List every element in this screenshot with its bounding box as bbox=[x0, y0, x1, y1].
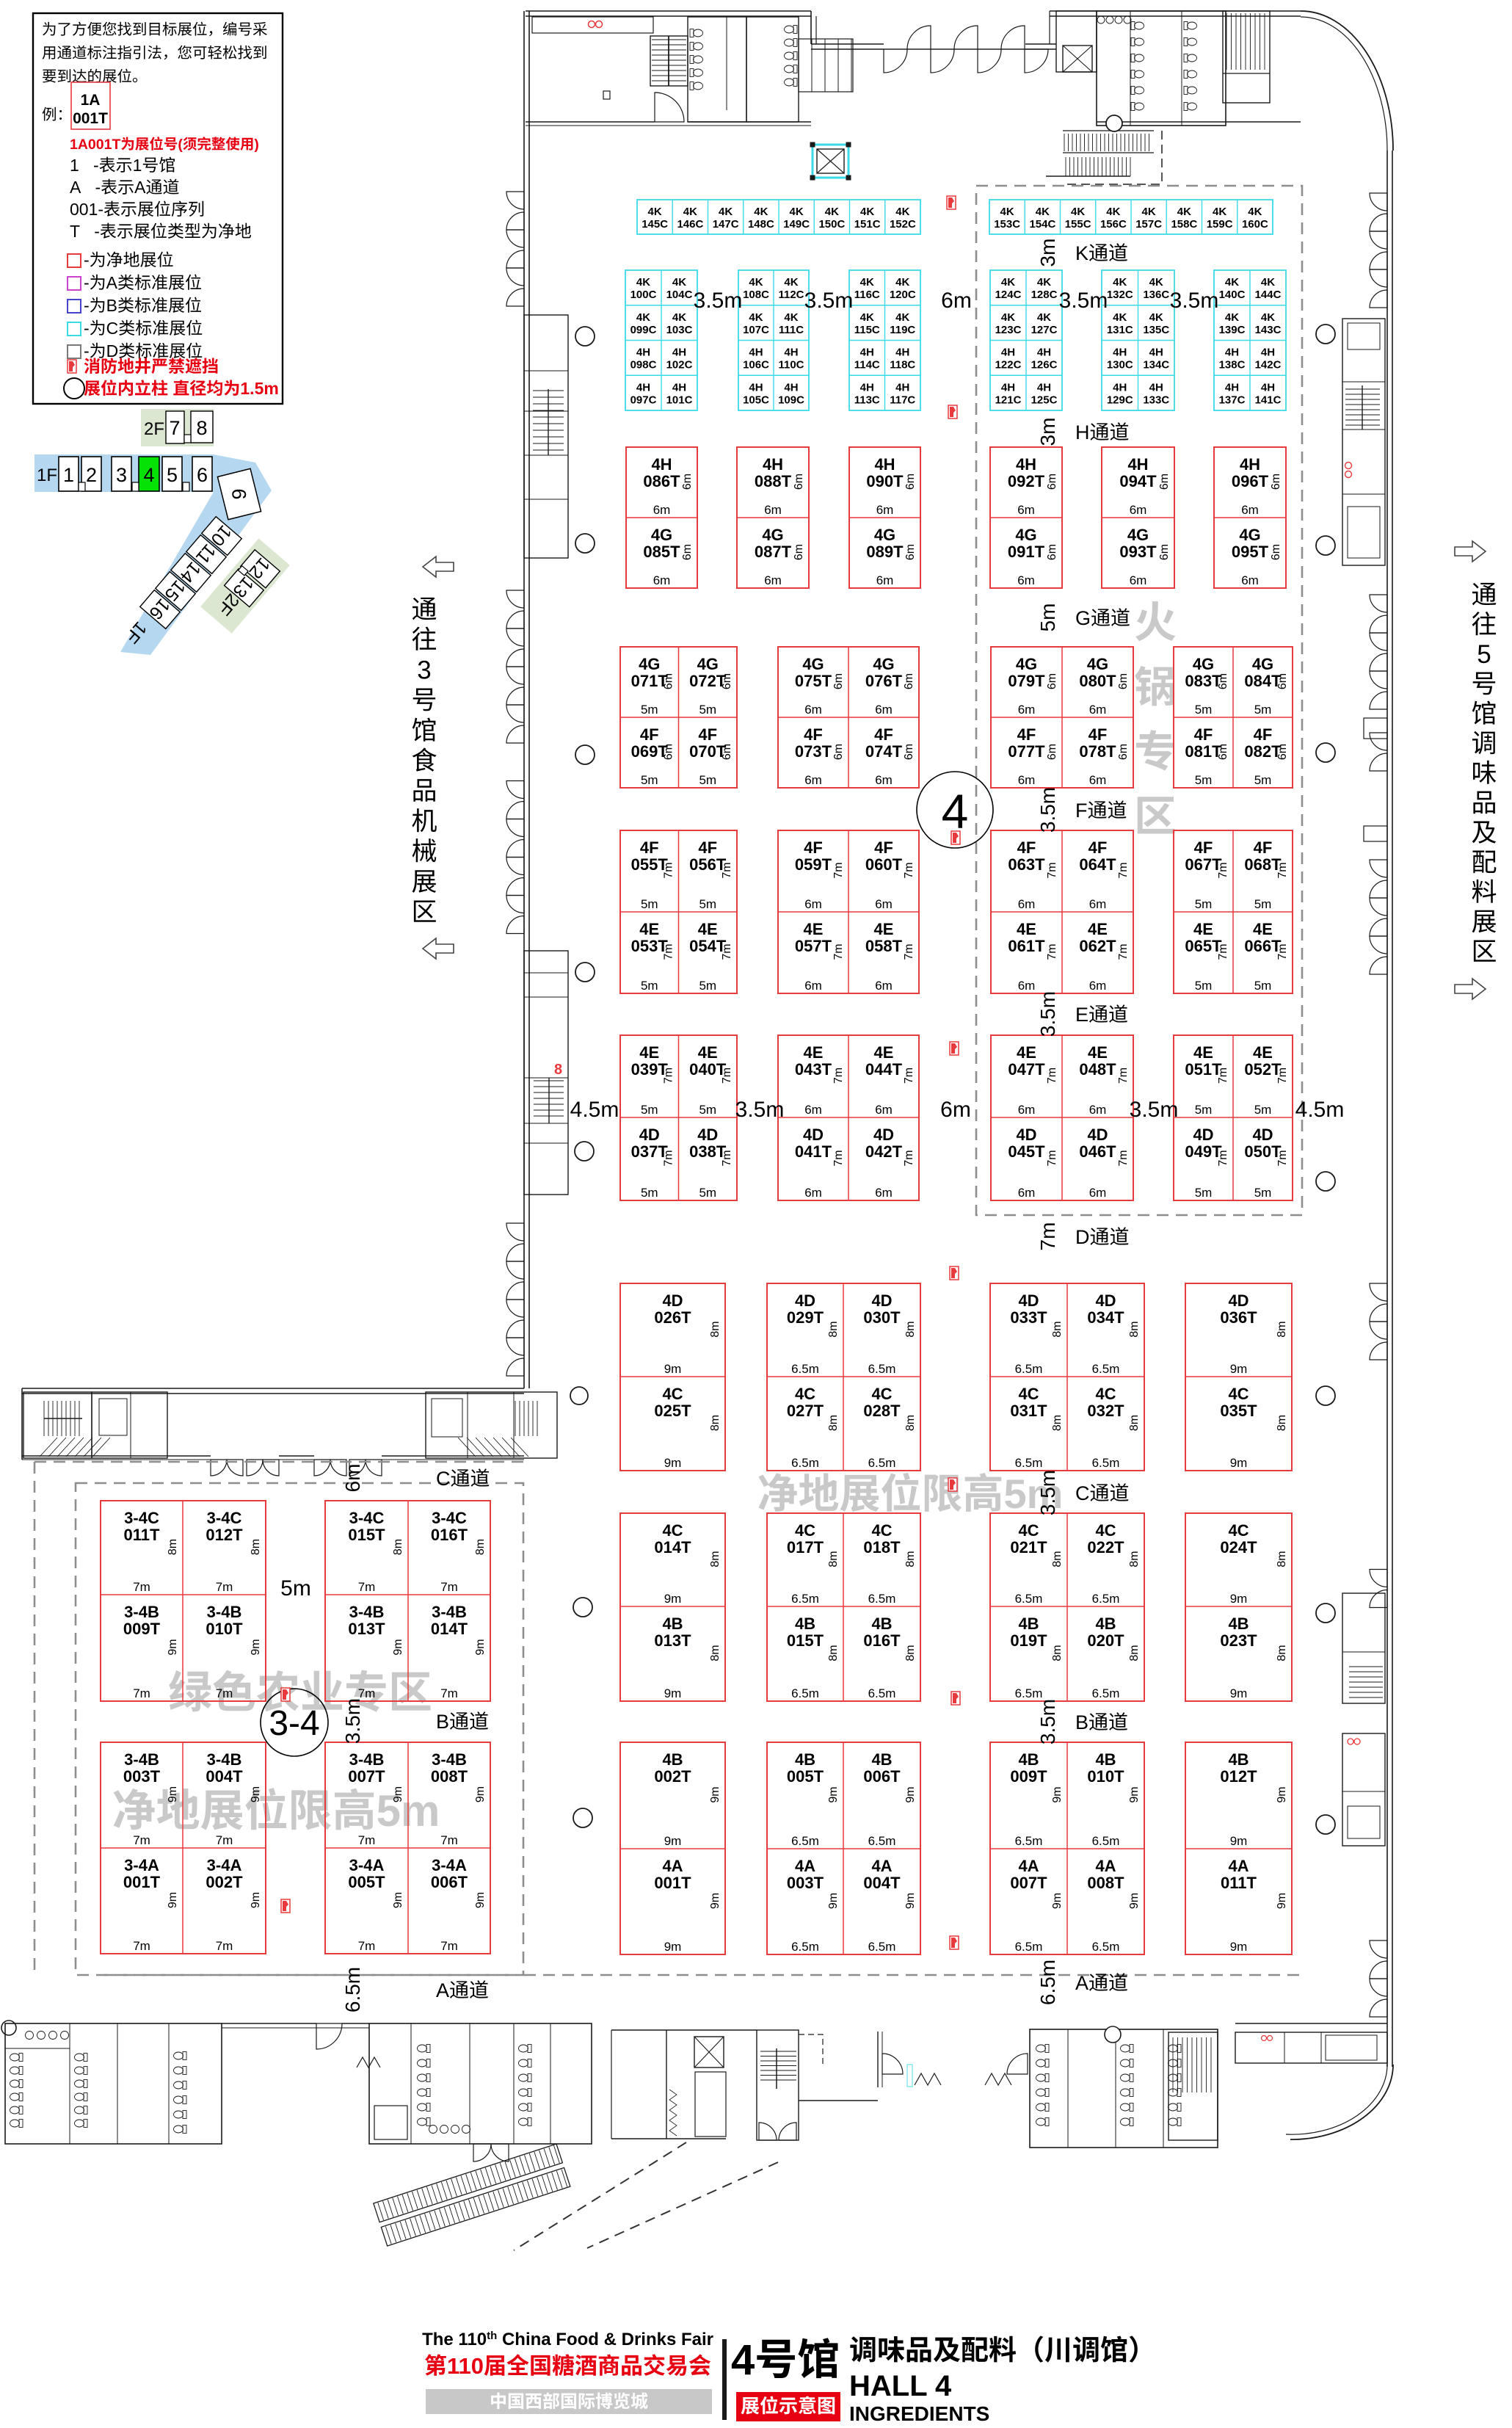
svg-text:4B: 4B bbox=[871, 1615, 892, 1633]
svg-text:010T: 010T bbox=[1087, 1767, 1124, 1786]
svg-text:6m: 6m bbox=[681, 544, 694, 560]
svg-text:4F: 4F bbox=[1017, 838, 1036, 857]
svg-text:114C: 114C bbox=[854, 359, 880, 372]
svg-text:6.5m: 6.5m bbox=[1092, 1686, 1120, 1700]
svg-text:9m: 9m bbox=[167, 1639, 179, 1655]
svg-text:9m: 9m bbox=[1230, 1362, 1248, 1376]
svg-text:7m: 7m bbox=[1276, 1068, 1289, 1084]
svg-text:014T: 014T bbox=[654, 1538, 691, 1557]
svg-text:食: 食 bbox=[411, 747, 437, 775]
svg-text:078T: 078T bbox=[1079, 742, 1116, 761]
svg-text:D通道: D通道 bbox=[1075, 1226, 1130, 1248]
svg-text:4C: 4C bbox=[662, 1385, 683, 1403]
svg-text:6.5m: 6.5m bbox=[868, 1592, 896, 1606]
svg-text:5m: 5m bbox=[1254, 773, 1272, 787]
svg-text:4B: 4B bbox=[1095, 1615, 1116, 1633]
svg-text:122C: 122C bbox=[995, 359, 1022, 372]
svg-text:7m: 7m bbox=[721, 1150, 733, 1166]
svg-text:4K: 4K bbox=[636, 311, 650, 324]
svg-text:4K: 4K bbox=[1113, 276, 1127, 289]
svg-text:6.5m: 6.5m bbox=[791, 1592, 819, 1606]
svg-text:7m: 7m bbox=[1117, 943, 1130, 960]
svg-text:4D: 4D bbox=[1095, 1291, 1116, 1310]
svg-text:K通道: K通道 bbox=[1075, 242, 1128, 264]
svg-text:7m: 7m bbox=[832, 1150, 845, 1166]
svg-text:6m: 6m bbox=[1089, 773, 1107, 787]
svg-text:8m: 8m bbox=[250, 1539, 262, 1555]
svg-text:126C: 126C bbox=[1031, 359, 1058, 372]
svg-text:6m: 6m bbox=[653, 573, 671, 587]
svg-text:5m: 5m bbox=[1195, 979, 1213, 993]
svg-text:3-4B: 3-4B bbox=[124, 1603, 159, 1621]
svg-text:4H: 4H bbox=[1037, 347, 1051, 359]
svg-text:7m: 7m bbox=[216, 1686, 233, 1700]
svg-text:6m: 6m bbox=[832, 744, 845, 760]
svg-text:003T: 003T bbox=[123, 1767, 161, 1786]
svg-text:6m: 6m bbox=[1018, 703, 1036, 717]
svg-text:4D: 4D bbox=[1016, 1126, 1036, 1144]
svg-text:7m: 7m bbox=[1276, 1150, 1289, 1166]
svg-text:7m: 7m bbox=[721, 943, 733, 960]
svg-text:4E: 4E bbox=[1253, 920, 1273, 938]
svg-text:6m: 6m bbox=[1158, 544, 1171, 560]
svg-text:023T: 023T bbox=[1220, 1631, 1257, 1650]
svg-text:5m: 5m bbox=[1195, 1186, 1213, 1200]
svg-text:5m: 5m bbox=[1254, 979, 1272, 993]
svg-text:094T: 094T bbox=[1119, 472, 1157, 490]
svg-text:6m: 6m bbox=[1276, 673, 1289, 689]
svg-text:041T: 041T bbox=[795, 1142, 832, 1161]
svg-text:号: 号 bbox=[1471, 670, 1497, 699]
svg-text:8m: 8m bbox=[827, 1645, 840, 1661]
svg-text:7m: 7m bbox=[1117, 1150, 1130, 1166]
svg-text:4F: 4F bbox=[1088, 838, 1108, 857]
svg-text:158C: 158C bbox=[1171, 218, 1197, 231]
svg-text:A通道: A通道 bbox=[1075, 1972, 1128, 1994]
svg-text:7m: 7m bbox=[721, 1068, 733, 1084]
svg-text:6m: 6m bbox=[875, 1103, 893, 1117]
svg-text:4H: 4H bbox=[1113, 381, 1127, 394]
svg-text:6.5m: 6.5m bbox=[1015, 1940, 1043, 1954]
svg-text:4K: 4K bbox=[1106, 206, 1120, 218]
svg-text:006T: 006T bbox=[431, 1873, 468, 1891]
svg-text:消防地井严禁遮挡: 消防地井严禁遮挡 bbox=[84, 357, 219, 376]
svg-text:004T: 004T bbox=[863, 1874, 901, 1892]
svg-text:059T: 059T bbox=[795, 855, 832, 874]
svg-text:4H: 4H bbox=[874, 455, 895, 474]
svg-text:3-4C: 3-4C bbox=[349, 1509, 385, 1527]
svg-text:4K: 4K bbox=[860, 311, 874, 324]
svg-text:133C: 133C bbox=[1143, 394, 1169, 406]
svg-text:002T: 002T bbox=[654, 1767, 691, 1786]
svg-text:4H: 4H bbox=[636, 381, 650, 394]
svg-text:7m: 7m bbox=[1217, 1068, 1229, 1084]
svg-text:9m: 9m bbox=[904, 1786, 917, 1802]
svg-text:6m: 6m bbox=[1241, 573, 1259, 587]
svg-text:品: 品 bbox=[1471, 789, 1497, 818]
svg-text:073T: 073T bbox=[795, 742, 832, 761]
svg-text:4H: 4H bbox=[1001, 381, 1015, 394]
svg-text:5m: 5m bbox=[1036, 604, 1059, 632]
svg-text:141C: 141C bbox=[1255, 394, 1282, 406]
svg-text:090T: 090T bbox=[866, 472, 904, 490]
svg-text:5m: 5m bbox=[699, 1103, 716, 1117]
svg-text:9m: 9m bbox=[474, 1639, 487, 1655]
svg-text:9m: 9m bbox=[664, 1686, 682, 1700]
svg-text:A通道: A通道 bbox=[436, 1979, 489, 2001]
svg-text:1A: 1A bbox=[81, 92, 101, 109]
svg-text:9m: 9m bbox=[827, 1893, 840, 1909]
svg-text:139C: 139C bbox=[1219, 324, 1246, 336]
svg-text:4H: 4H bbox=[636, 347, 650, 359]
svg-text:009T: 009T bbox=[1010, 1767, 1047, 1786]
svg-text:4K: 4K bbox=[636, 276, 650, 289]
svg-text:010T: 010T bbox=[206, 1620, 243, 1638]
svg-text:153C: 153C bbox=[994, 218, 1020, 231]
svg-text:154C: 154C bbox=[1029, 218, 1055, 231]
svg-text:8m: 8m bbox=[392, 1539, 404, 1555]
svg-text:品: 品 bbox=[411, 777, 437, 805]
svg-text:6.5m: 6.5m bbox=[868, 1456, 896, 1470]
svg-text:4H: 4H bbox=[1261, 347, 1275, 359]
svg-text:HALL 4: HALL 4 bbox=[849, 2370, 952, 2402]
svg-text:1A001T为展位号(须完整使用): 1A001T为展位号(须完整使用) bbox=[70, 137, 259, 153]
svg-text:128C: 128C bbox=[1031, 289, 1058, 301]
svg-text:031T: 031T bbox=[1010, 1402, 1047, 1420]
svg-text:4E: 4E bbox=[1017, 1043, 1036, 1062]
svg-text:4F: 4F bbox=[874, 838, 893, 857]
svg-text:1F: 1F bbox=[37, 465, 57, 485]
svg-text:016T: 016T bbox=[863, 1631, 901, 1650]
svg-text:077T: 077T bbox=[1008, 742, 1045, 761]
svg-text:展: 展 bbox=[411, 868, 437, 896]
svg-text:4G: 4G bbox=[651, 526, 672, 544]
svg-text:6m: 6m bbox=[876, 503, 894, 517]
svg-text:6m: 6m bbox=[804, 773, 822, 787]
svg-text:9m: 9m bbox=[709, 1893, 722, 1909]
svg-text:调味品及配料（川调馆）: 调味品及配料（川调馆） bbox=[849, 2335, 1156, 2366]
svg-text:4G: 4G bbox=[1193, 655, 1214, 673]
svg-text:089T: 089T bbox=[866, 543, 904, 561]
svg-text:6m: 6m bbox=[804, 1186, 822, 1200]
svg-text:7m: 7m bbox=[663, 1068, 675, 1084]
svg-text:6m: 6m bbox=[903, 744, 915, 760]
svg-text:6.5m: 6.5m bbox=[868, 1834, 896, 1848]
svg-text:9m: 9m bbox=[664, 1456, 682, 1470]
svg-text:7m: 7m bbox=[440, 1686, 458, 1700]
svg-text:4E: 4E bbox=[804, 920, 824, 938]
svg-text:8m: 8m bbox=[474, 1539, 487, 1555]
svg-text:区: 区 bbox=[411, 898, 437, 927]
svg-text:4K: 4K bbox=[1001, 311, 1015, 324]
svg-text:6m: 6m bbox=[1018, 1103, 1036, 1117]
svg-text:为了方便您找到目标展位，编号采: 为了方便您找到目标展位，编号采 bbox=[42, 21, 268, 38]
svg-text:中国西部国际博览城: 中国西部国际博览城 bbox=[490, 2392, 648, 2412]
svg-text:121C: 121C bbox=[995, 394, 1022, 406]
svg-text:8m: 8m bbox=[904, 1321, 917, 1337]
svg-text:143C: 143C bbox=[1255, 324, 1282, 336]
svg-text:101C: 101C bbox=[666, 394, 693, 406]
svg-text:4C: 4C bbox=[1228, 1521, 1249, 1540]
svg-text:及: 及 bbox=[1471, 819, 1497, 847]
svg-text:105C: 105C bbox=[743, 394, 769, 406]
svg-text:6m: 6m bbox=[1089, 1103, 1107, 1117]
svg-text:6m: 6m bbox=[1270, 544, 1282, 560]
svg-text:8m: 8m bbox=[1276, 1551, 1288, 1567]
svg-text:013T: 013T bbox=[654, 1631, 691, 1650]
svg-text:1 -表示1号馆: 1 -表示1号馆 bbox=[70, 156, 175, 175]
svg-text:019T: 019T bbox=[1010, 1631, 1047, 1650]
svg-text:配: 配 bbox=[1471, 849, 1497, 877]
svg-text:4A: 4A bbox=[1095, 1857, 1116, 1875]
svg-text:4G: 4G bbox=[1239, 526, 1260, 544]
svg-text:4E: 4E bbox=[639, 920, 659, 938]
svg-text:7m: 7m bbox=[216, 1939, 233, 1953]
svg-text:024T: 024T bbox=[1220, 1538, 1257, 1557]
svg-text:9m: 9m bbox=[1230, 1456, 1248, 1470]
svg-text:7m: 7m bbox=[1217, 1150, 1229, 1166]
svg-text:7m: 7m bbox=[1117, 862, 1130, 878]
svg-text:3.5m: 3.5m bbox=[694, 289, 743, 313]
svg-text:7m: 7m bbox=[440, 1939, 458, 1953]
svg-text:093T: 093T bbox=[1119, 543, 1157, 561]
svg-text:006T: 006T bbox=[863, 1767, 901, 1786]
svg-text:5m: 5m bbox=[1195, 1103, 1213, 1117]
svg-text:3-4A: 3-4A bbox=[349, 1856, 385, 1874]
svg-text:7m: 7m bbox=[1217, 862, 1229, 878]
svg-text:8m: 8m bbox=[1276, 1645, 1288, 1661]
svg-text:4H: 4H bbox=[1127, 455, 1148, 474]
svg-text:8m: 8m bbox=[1128, 1645, 1141, 1661]
svg-text:味: 味 bbox=[1471, 759, 1497, 788]
svg-text:4F: 4F bbox=[698, 725, 717, 744]
svg-text:6m: 6m bbox=[903, 673, 915, 689]
svg-text:9m: 9m bbox=[167, 1892, 179, 1908]
svg-text:5m: 5m bbox=[641, 897, 658, 911]
svg-text:4G: 4G bbox=[874, 526, 895, 544]
svg-text:116C: 116C bbox=[854, 289, 880, 301]
svg-text:7m: 7m bbox=[721, 862, 733, 878]
svg-text:净地展位限高5m: 净地展位限高5m bbox=[757, 1471, 1064, 1517]
svg-text:034T: 034T bbox=[1087, 1308, 1124, 1327]
svg-text:157C: 157C bbox=[1135, 218, 1162, 231]
svg-text:-为A类标准展位: -为A类标准展位 bbox=[84, 273, 202, 292]
svg-text:6m: 6m bbox=[904, 474, 917, 490]
svg-text:140C: 140C bbox=[1219, 289, 1246, 301]
svg-text:往: 往 bbox=[1471, 611, 1497, 639]
svg-text:6m: 6m bbox=[1017, 503, 1035, 517]
svg-text:2F: 2F bbox=[144, 419, 164, 439]
svg-text:4B: 4B bbox=[1228, 1750, 1249, 1769]
svg-text:3-4C: 3-4C bbox=[207, 1509, 242, 1527]
svg-text:4H: 4H bbox=[672, 381, 686, 394]
svg-text:4E: 4E bbox=[639, 1043, 659, 1062]
svg-text:The 110th China Food & Drinks: The 110th China Food & Drinks Fair bbox=[422, 2330, 713, 2349]
svg-text:6.5m: 6.5m bbox=[1092, 1362, 1120, 1376]
svg-text:4C: 4C bbox=[1018, 1385, 1039, 1403]
svg-text:4E: 4E bbox=[1017, 920, 1036, 938]
svg-text:147C: 147C bbox=[713, 218, 739, 231]
svg-text:INGREDIENTS: INGREDIENTS bbox=[849, 2402, 989, 2425]
svg-text:4C: 4C bbox=[662, 1521, 683, 1540]
svg-text:4F: 4F bbox=[1088, 725, 1108, 744]
svg-text:3-4B: 3-4B bbox=[207, 1603, 242, 1621]
svg-text:142C: 142C bbox=[1255, 359, 1282, 372]
svg-text:085T: 085T bbox=[643, 543, 680, 561]
svg-text:4G: 4G bbox=[1015, 526, 1036, 544]
svg-text:4H: 4H bbox=[1149, 381, 1163, 394]
svg-text:150C: 150C bbox=[818, 218, 845, 231]
svg-text:4E: 4E bbox=[874, 1043, 894, 1062]
svg-text:9m: 9m bbox=[392, 1786, 404, 1802]
svg-text:008T: 008T bbox=[431, 1767, 468, 1786]
svg-text:6: 6 bbox=[197, 464, 208, 486]
svg-text:021T: 021T bbox=[1010, 1538, 1047, 1557]
svg-text:5m: 5m bbox=[1254, 897, 1272, 911]
svg-text:5m: 5m bbox=[1254, 1103, 1272, 1117]
svg-text:099C: 099C bbox=[630, 324, 657, 336]
svg-text:015T: 015T bbox=[348, 1526, 385, 1544]
svg-text:6.5m: 6.5m bbox=[791, 1456, 819, 1470]
svg-text:7m: 7m bbox=[1276, 943, 1289, 960]
svg-text:001T: 001T bbox=[73, 110, 108, 127]
svg-text:T -表示展位类型为净地: T -表示展位类型为净地 bbox=[70, 222, 252, 241]
svg-text:4A: 4A bbox=[1018, 1857, 1039, 1875]
svg-text:3-4C: 3-4C bbox=[432, 1509, 467, 1527]
svg-text:149C: 149C bbox=[783, 218, 810, 231]
svg-text:6m: 6m bbox=[341, 1464, 364, 1493]
svg-text:4E: 4E bbox=[874, 920, 894, 938]
svg-text:7m: 7m bbox=[1046, 1068, 1058, 1084]
svg-text:4E: 4E bbox=[1193, 920, 1213, 938]
svg-text:3-4A: 3-4A bbox=[207, 1856, 242, 1874]
svg-text:4K: 4K bbox=[683, 206, 697, 218]
svg-text:151C: 151C bbox=[854, 218, 881, 231]
svg-text:6m: 6m bbox=[1130, 503, 1147, 517]
svg-text:6m: 6m bbox=[1089, 1186, 1107, 1200]
svg-text:4K: 4K bbox=[1177, 206, 1191, 218]
svg-text:4D: 4D bbox=[873, 1126, 894, 1144]
svg-text:1: 1 bbox=[63, 464, 74, 486]
svg-text:8m: 8m bbox=[709, 1551, 722, 1567]
svg-text:9m: 9m bbox=[250, 1639, 262, 1655]
svg-text:4K: 4K bbox=[749, 311, 763, 324]
svg-text:103C: 103C bbox=[666, 324, 693, 336]
svg-text:3-4B: 3-4B bbox=[207, 1750, 242, 1769]
svg-text:4G: 4G bbox=[762, 526, 783, 544]
svg-text:4D: 4D bbox=[639, 1126, 660, 1144]
svg-text:036T: 036T bbox=[1220, 1308, 1257, 1327]
svg-text:4F: 4F bbox=[698, 838, 717, 857]
svg-text:6m: 6m bbox=[804, 897, 822, 911]
svg-text:087T: 087T bbox=[755, 543, 792, 561]
svg-text:6.5m: 6.5m bbox=[868, 1940, 896, 1954]
svg-text:4B: 4B bbox=[795, 1750, 815, 1769]
svg-text:4K: 4K bbox=[895, 311, 909, 324]
svg-text:7m: 7m bbox=[903, 862, 915, 878]
svg-text:6m: 6m bbox=[940, 1098, 971, 1122]
svg-text:104C: 104C bbox=[666, 289, 693, 301]
svg-text:6m: 6m bbox=[1217, 744, 1229, 760]
svg-text:2: 2 bbox=[86, 464, 97, 486]
svg-text:4K: 4K bbox=[1113, 311, 1127, 324]
svg-text:7m: 7m bbox=[216, 1833, 233, 1847]
svg-text:9m: 9m bbox=[1230, 1686, 1248, 1700]
svg-text:6m: 6m bbox=[1018, 773, 1036, 787]
svg-text:3.5m: 3.5m bbox=[1170, 289, 1219, 313]
svg-text:4E: 4E bbox=[1088, 1043, 1108, 1062]
svg-text:4G: 4G bbox=[873, 655, 894, 673]
svg-text:6.5m: 6.5m bbox=[791, 1686, 819, 1700]
svg-text:4K: 4K bbox=[1261, 276, 1275, 289]
svg-text:6.5m: 6.5m bbox=[868, 1362, 896, 1376]
svg-text:4H: 4H bbox=[1113, 347, 1127, 359]
svg-text:032T: 032T bbox=[1087, 1402, 1124, 1420]
svg-text:7m: 7m bbox=[358, 1939, 376, 1953]
svg-text:7m: 7m bbox=[1117, 1068, 1130, 1084]
svg-text:展位内立柱 直径均为1.5m: 展位内立柱 直径均为1.5m bbox=[84, 379, 279, 398]
svg-text:净地展位限高5m: 净地展位限高5m bbox=[112, 1786, 440, 1836]
svg-text:4B: 4B bbox=[795, 1615, 815, 1633]
svg-text:-为B类标准展位: -为B类标准展位 bbox=[84, 296, 202, 315]
svg-text:9m: 9m bbox=[664, 1834, 682, 1848]
svg-text:3.5m: 3.5m bbox=[804, 289, 854, 313]
svg-text:4D: 4D bbox=[795, 1291, 815, 1310]
svg-text:号: 号 bbox=[411, 686, 437, 715]
svg-text:4E: 4E bbox=[1193, 1043, 1213, 1062]
svg-text:003T: 003T bbox=[787, 1874, 824, 1892]
svg-text:4K: 4K bbox=[1037, 276, 1051, 289]
svg-text:料: 料 bbox=[1471, 878, 1497, 907]
svg-text:4E: 4E bbox=[698, 920, 718, 938]
svg-text:6m: 6m bbox=[876, 573, 894, 587]
svg-text:018T: 018T bbox=[863, 1538, 901, 1557]
svg-text:131C: 131C bbox=[1107, 324, 1133, 336]
svg-text:6m: 6m bbox=[663, 744, 675, 760]
svg-text:058T: 058T bbox=[865, 937, 903, 955]
svg-text:160C: 160C bbox=[1242, 218, 1268, 231]
svg-text:9m: 9m bbox=[1051, 1786, 1064, 1802]
svg-text:012T: 012T bbox=[1220, 1767, 1257, 1786]
svg-text:4D: 4D bbox=[1018, 1291, 1039, 1310]
svg-text:4H: 4H bbox=[895, 347, 909, 359]
svg-text:7m: 7m bbox=[663, 862, 675, 878]
svg-text:7m: 7m bbox=[1046, 943, 1058, 960]
svg-text:6.5m: 6.5m bbox=[1036, 1960, 1059, 2005]
svg-text:4K: 4K bbox=[1071, 206, 1085, 218]
svg-text:4K: 4K bbox=[672, 276, 686, 289]
svg-text:115C: 115C bbox=[854, 324, 880, 336]
svg-text:060T: 060T bbox=[865, 855, 903, 874]
svg-text:6.5m: 6.5m bbox=[1092, 1456, 1120, 1470]
svg-text:专: 专 bbox=[1134, 728, 1177, 776]
svg-text:6m: 6m bbox=[904, 544, 917, 560]
svg-text:4K: 4K bbox=[1000, 206, 1014, 218]
svg-text:5m: 5m bbox=[699, 897, 716, 911]
svg-text:6m: 6m bbox=[875, 1186, 893, 1200]
svg-text:4B: 4B bbox=[1228, 1615, 1249, 1633]
svg-text:4.5m: 4.5m bbox=[1295, 1098, 1345, 1122]
svg-text:8m: 8m bbox=[709, 1645, 722, 1661]
svg-text:7m: 7m bbox=[903, 943, 915, 960]
svg-text:001-表示展位序列: 001-表示展位序列 bbox=[70, 200, 205, 219]
svg-text:4F: 4F bbox=[874, 725, 893, 744]
svg-text:029T: 029T bbox=[787, 1308, 824, 1327]
svg-text:004T: 004T bbox=[206, 1767, 243, 1786]
svg-text:6.5m: 6.5m bbox=[1015, 1362, 1043, 1376]
svg-text:9m: 9m bbox=[1230, 1940, 1248, 1954]
svg-text:6m: 6m bbox=[804, 979, 822, 993]
